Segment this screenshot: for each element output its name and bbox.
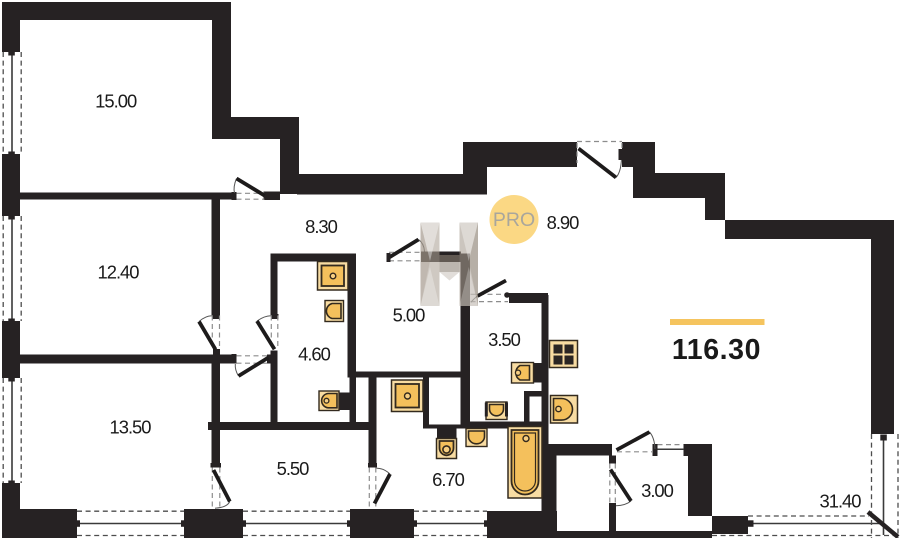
svg-text:4.60: 4.60 xyxy=(298,344,331,365)
svg-text:5.50: 5.50 xyxy=(277,458,310,479)
svg-text:15.00: 15.00 xyxy=(95,91,137,112)
svg-text:8.30: 8.30 xyxy=(305,216,338,237)
svg-text:6.70: 6.70 xyxy=(432,469,465,490)
svg-text:13.50: 13.50 xyxy=(109,417,151,438)
svg-text:116.30: 116.30 xyxy=(672,334,761,366)
svg-text:5.00: 5.00 xyxy=(393,305,426,326)
svg-text:31.40: 31.40 xyxy=(819,491,861,512)
svg-text:PRO: PRO xyxy=(493,209,535,231)
svg-text:12.40: 12.40 xyxy=(97,262,139,283)
svg-text:8.90: 8.90 xyxy=(547,212,580,233)
svg-text:3.50: 3.50 xyxy=(488,329,521,350)
svg-text:3.00: 3.00 xyxy=(641,480,674,501)
